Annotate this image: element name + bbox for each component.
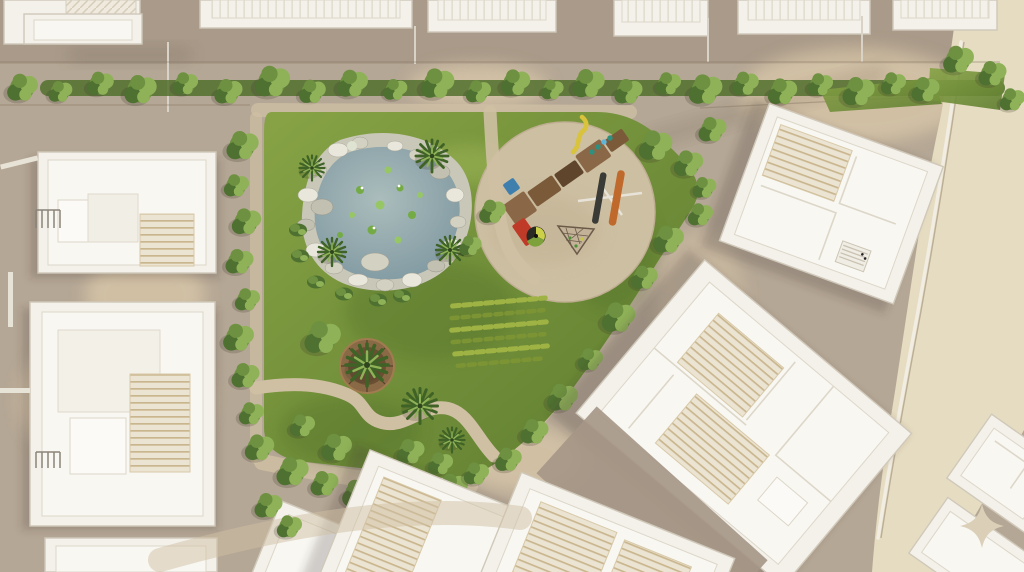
building-top-1 — [4, 0, 142, 44]
palm-tree — [345, 344, 389, 386]
bush — [291, 250, 309, 263]
palm-tree — [439, 427, 465, 452]
palm-tree — [317, 238, 346, 266]
circular-planter — [340, 339, 394, 393]
building-top-2 — [200, 0, 412, 28]
bush — [335, 288, 353, 301]
park-top-path — [258, 110, 630, 112]
bush — [307, 276, 325, 289]
bush — [369, 294, 387, 307]
building-top-4 — [614, 0, 708, 36]
bush — [289, 224, 307, 237]
palm-tree — [415, 140, 448, 172]
villa-left-1 — [30, 152, 220, 278]
villa-left-2 — [22, 302, 218, 530]
left-villas — [0, 152, 220, 572]
site-plan — [0, 0, 1024, 572]
masterplan-render — [0, 0, 1024, 572]
bush — [393, 290, 411, 303]
building-top-3 — [428, 0, 556, 32]
palm-tree — [401, 389, 437, 424]
building-top-6 — [893, 0, 997, 30]
palm-tree — [299, 155, 325, 180]
building-top-5 — [738, 0, 870, 34]
